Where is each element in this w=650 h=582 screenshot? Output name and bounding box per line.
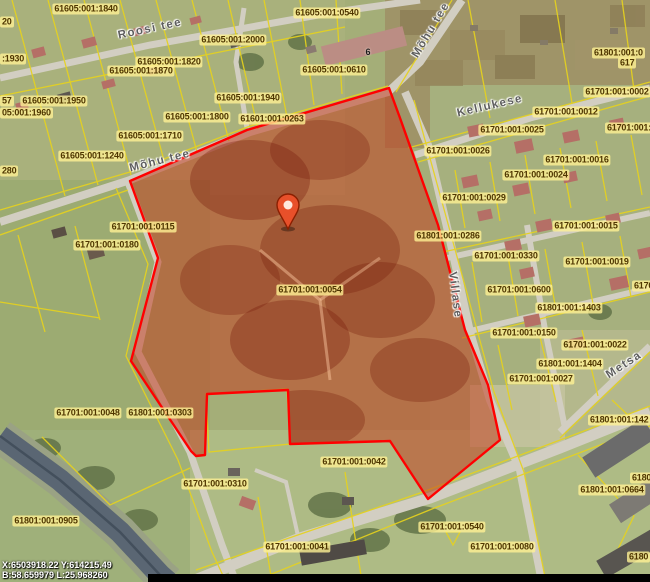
coordinate-readout: X:6503918.22 Y:614215.49 B:58.659979 L:2… [2,560,112,580]
map-graphics [0,0,650,582]
coordinate-bl: B:58.659979 L:25.968260 [2,570,112,580]
coordinate-xy: X:6503918.22 Y:614215.49 [2,560,112,570]
map-viewport[interactable]: 61605:001:184061605:001:054061605:001:20… [0,0,650,582]
bottom-black-bar [148,574,650,582]
